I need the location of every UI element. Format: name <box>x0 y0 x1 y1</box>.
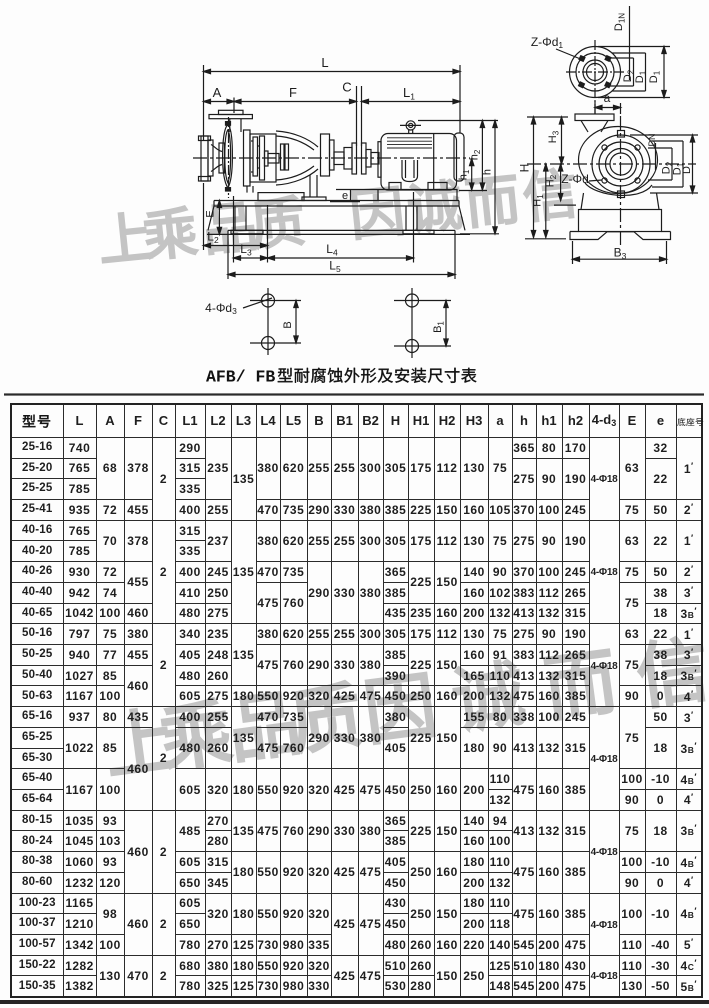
svg-text:h1: h1 <box>458 169 472 180</box>
svg-text:C: C <box>342 80 351 95</box>
svg-text:L1: L1 <box>403 85 415 102</box>
svg-text:D1: D1 <box>648 70 662 83</box>
svg-text:L5: L5 <box>329 259 341 275</box>
svg-text:H: H <box>518 164 532 173</box>
svg-text:B1: B1 <box>432 321 446 333</box>
svg-text:L3: L3 <box>240 242 252 258</box>
svg-text:Z-Φd: Z-Φd <box>561 172 589 186</box>
svg-text:h2: h2 <box>469 149 483 160</box>
svg-text:A: A <box>213 85 222 100</box>
svg-text:D: D <box>681 166 693 174</box>
svg-text:D1N: D1N <box>613 13 627 31</box>
svg-text:AFB/ FB: AFB/ FB <box>206 368 275 387</box>
svg-text:D1: D1 <box>634 70 648 83</box>
svg-text:E: E <box>205 210 217 217</box>
svg-text:L: L <box>321 55 328 70</box>
svg-text:Z-Φd1: Z-Φd1 <box>531 35 564 50</box>
svg-text:H3: H3 <box>547 130 561 143</box>
svg-text:4-Φd3: 4-Φd3 <box>205 301 237 316</box>
svg-text:e: e <box>342 190 348 202</box>
svg-text:h: h <box>482 169 494 175</box>
svg-text:B: B <box>282 321 294 328</box>
svg-text:F: F <box>289 85 297 100</box>
svg-text:a: a <box>604 91 611 105</box>
svg-text:B3: B3 <box>614 246 627 262</box>
svg-text:L4: L4 <box>326 242 338 258</box>
svg-text:H2: H2 <box>545 174 559 187</box>
svg-text:L2: L2 <box>207 230 219 246</box>
